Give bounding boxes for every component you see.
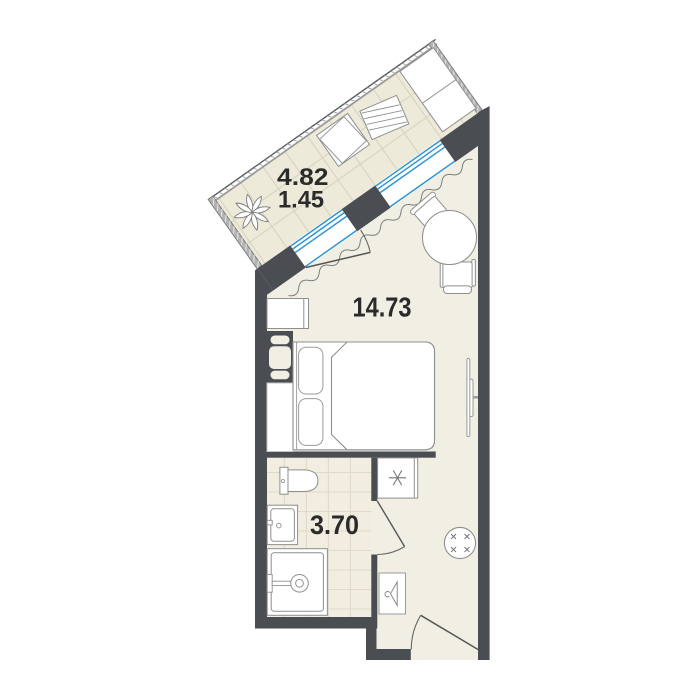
- svg-text:3.70: 3.70: [310, 510, 359, 540]
- svg-text:14.73: 14.73: [353, 291, 412, 322]
- svg-text:1.45: 1.45: [278, 187, 324, 214]
